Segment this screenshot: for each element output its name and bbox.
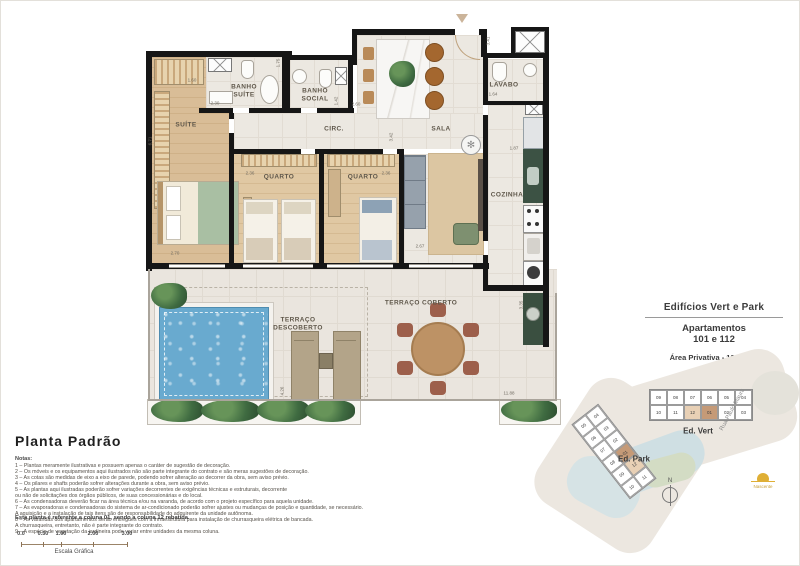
unit-number: 10 xyxy=(628,483,635,490)
dimension-label: 11.88 xyxy=(504,391,515,396)
unit-number: 07 xyxy=(599,447,606,454)
unit-number: 02 xyxy=(612,437,619,444)
dimension-label: 2.36 xyxy=(382,171,391,176)
wall xyxy=(543,291,549,347)
unit-number: 05 xyxy=(580,422,587,429)
bar-stool xyxy=(425,91,444,110)
dimension-label: 1.87 xyxy=(510,146,519,151)
unit-number: 11 xyxy=(641,474,648,481)
apartments-label: Apartamentos xyxy=(634,323,794,334)
unit-number: 09 xyxy=(618,471,625,478)
unit-number: 03 xyxy=(741,410,746,415)
burner xyxy=(535,209,539,213)
shaft-box xyxy=(515,31,545,53)
dimension-label: 1.42 xyxy=(334,97,339,106)
banho-suite-tub xyxy=(260,75,279,104)
lounge-chair xyxy=(333,331,361,401)
floor-plan-page: ✻ xyxy=(0,0,800,566)
unit-cell: 08 xyxy=(667,390,684,405)
note-item: 9 – A espécie de vegetação da jardineira… xyxy=(15,529,535,535)
room-label-quarto2: QUARTO xyxy=(348,173,378,181)
room-label-sala: SALA xyxy=(431,125,450,133)
quarto1-wardrobe xyxy=(241,154,317,167)
quarto2-bed xyxy=(359,197,397,263)
note-item: 5 – As plantas aqui ilustradas poderão s… xyxy=(15,487,535,499)
kitchen-counter-dark xyxy=(523,149,543,203)
wall xyxy=(317,108,354,113)
fridge xyxy=(523,117,545,149)
kitchen-counter-sink xyxy=(523,233,545,261)
unit-number: 08 xyxy=(673,395,678,400)
building-title: Edifícios Vert e Park xyxy=(634,302,794,313)
dining-table xyxy=(411,322,465,376)
dimension-label: 3.35 xyxy=(519,301,524,310)
wall xyxy=(146,51,152,271)
plant xyxy=(257,399,309,422)
entry-marker-icon xyxy=(456,14,468,23)
armchair xyxy=(453,223,479,245)
banho-suite-toilet xyxy=(241,60,254,79)
room-label-cozinha: COZINHA xyxy=(491,191,523,199)
unit-cell: 06 xyxy=(701,390,718,405)
room-label-suite: SUÍTE xyxy=(175,121,196,129)
unit-cell: 07 xyxy=(684,390,701,405)
quarto2-pillow xyxy=(362,200,392,213)
dimension-label: 2.60 xyxy=(352,102,361,107)
island-plant xyxy=(389,61,415,87)
unit-cell: 09 xyxy=(650,390,667,405)
unit-number: 01 xyxy=(707,410,712,415)
lavabo-sink xyxy=(523,63,537,77)
dimension-label: 2.67 xyxy=(416,244,425,249)
wall xyxy=(319,154,324,265)
suite-bed-headboard xyxy=(158,182,163,244)
lounge-line xyxy=(294,340,314,341)
ed-park-label: Ed. Park xyxy=(618,455,650,464)
sun-label: Nascente xyxy=(753,484,772,489)
dimension-label: 2.30 xyxy=(211,101,220,106)
dimension-label: 6.71 xyxy=(148,137,153,146)
unit-cell: 11 xyxy=(667,405,684,420)
room-label-terraco-descoberto: TERRAÇO DESCOBERTO xyxy=(273,317,323,332)
dimension-label: 1.75 xyxy=(276,59,281,68)
burner xyxy=(535,222,539,226)
compass-n-label: N xyxy=(668,478,672,484)
burner xyxy=(527,209,531,213)
plant xyxy=(151,283,187,309)
unit-number: 08 xyxy=(609,459,616,466)
quarto2-wardrobe xyxy=(327,154,395,167)
unit-number: 03 xyxy=(602,425,609,432)
glass-door xyxy=(409,264,473,268)
site-tree xyxy=(751,371,799,415)
plant xyxy=(151,399,203,422)
side-table xyxy=(319,353,333,369)
dimension-label: 1.64 xyxy=(489,92,498,97)
quarto1-bed xyxy=(243,199,278,263)
lounge-chair xyxy=(291,331,319,401)
dimension-label: 2.36 xyxy=(246,171,255,176)
wall xyxy=(399,154,404,265)
island-chair xyxy=(363,69,374,82)
lavabo-toilet xyxy=(492,62,507,82)
wall xyxy=(290,55,354,60)
suite-pillow xyxy=(166,186,181,211)
plant xyxy=(305,400,355,422)
wall xyxy=(483,255,488,287)
unit-number: 05 xyxy=(724,395,729,400)
banho-social-shower xyxy=(335,67,347,85)
pool xyxy=(159,307,269,401)
page-title: Planta Padrão xyxy=(15,433,121,449)
notes-heading: Notas: xyxy=(15,456,32,462)
compass-icon xyxy=(662,487,678,503)
unit-cell: 01 xyxy=(701,405,718,420)
notes-list: 1 – Plantas meramente ilustrativas e pos… xyxy=(15,463,535,535)
quarto1-throw xyxy=(246,238,273,260)
unit-number: 11 xyxy=(673,410,678,415)
unit-number: 09 xyxy=(656,395,661,400)
room-label-terraco-coberto: TERRAÇO COBERTO xyxy=(385,299,457,307)
island-chair xyxy=(363,91,374,104)
unit-cell: 03 xyxy=(735,405,752,420)
unit-number: 06 xyxy=(707,395,712,400)
banho-suite-shower xyxy=(208,58,232,72)
suite-pillow xyxy=(166,215,181,240)
unit-number: 07 xyxy=(690,395,695,400)
room-label-circ: CIRC. xyxy=(324,125,344,133)
unit-cell: 10 xyxy=(650,405,667,420)
suite-bed xyxy=(157,181,239,245)
washer-drum xyxy=(527,266,540,279)
burner xyxy=(527,222,531,226)
dining-chair xyxy=(397,361,413,375)
quarto2-throw xyxy=(362,240,392,260)
quarto1-throw xyxy=(284,238,311,260)
unit-number: 04 xyxy=(593,413,600,420)
dining-chair xyxy=(397,323,413,337)
dimension-label: 3.41 xyxy=(486,37,491,46)
glass-door xyxy=(327,264,393,268)
bar-stool xyxy=(425,43,444,62)
terrace-edge xyxy=(148,269,150,401)
unit-number: 12 xyxy=(690,410,695,415)
glass-door xyxy=(243,264,313,268)
stove xyxy=(523,205,545,233)
wall xyxy=(483,53,488,101)
dimension-label: 2.70 xyxy=(171,251,180,256)
apartments-numbers: 101 e 112 xyxy=(634,334,794,345)
quarto2-desk xyxy=(328,169,341,217)
pool-inner-line xyxy=(164,312,264,396)
wall xyxy=(543,53,549,293)
ed-vert-label: Ed. Vert xyxy=(683,427,713,436)
banho-social-sink xyxy=(292,69,307,84)
compass-needle xyxy=(670,485,671,506)
bbq-grill xyxy=(526,307,540,321)
dining-chair xyxy=(463,323,479,337)
wall xyxy=(282,53,290,108)
room-label-quarto1: QUARTO xyxy=(264,173,294,181)
wall xyxy=(199,108,233,113)
wall xyxy=(229,113,234,119)
room-label-lavabo: LAVABO xyxy=(490,81,519,89)
lounge-line xyxy=(336,340,356,341)
terrace-edge xyxy=(148,399,557,401)
wall xyxy=(483,101,543,105)
quarto1-pillow xyxy=(284,202,311,214)
divider xyxy=(645,317,783,318)
quarto1-bed xyxy=(281,199,316,263)
room-label-banho-suite: BANHO SUÍTE xyxy=(231,84,257,99)
column-note: Esta planta é referente a coluna 01, sen… xyxy=(15,515,190,521)
dining-chair xyxy=(463,361,479,375)
sun-baseline xyxy=(751,481,775,482)
wall xyxy=(352,29,455,35)
wall xyxy=(249,108,301,113)
bbq-counter xyxy=(523,293,543,345)
wall xyxy=(315,149,383,154)
bar-stool xyxy=(425,67,444,86)
sun-disc xyxy=(757,473,769,481)
dimension-label: 4.26 xyxy=(280,387,285,396)
wall xyxy=(483,115,488,241)
plant xyxy=(201,400,259,422)
ceiling-fan: ✻ xyxy=(461,135,481,155)
site-plan: 090807060504101112010203 Ed. Vert 050406… xyxy=(541,361,800,561)
sink-basin xyxy=(527,238,540,254)
quarto1-pillow xyxy=(246,202,273,214)
sofa xyxy=(404,155,426,229)
washer xyxy=(523,261,545,287)
glass-door xyxy=(169,264,225,268)
unit-cell: 12 xyxy=(684,405,701,420)
island-chair xyxy=(363,47,374,60)
dimension-label: 3.42 xyxy=(389,133,394,142)
wall xyxy=(234,149,301,154)
kitchen-sink xyxy=(527,167,539,185)
banho-social-toilet xyxy=(319,69,332,88)
room-label-banho-social: BANHO SOCIAL xyxy=(302,88,329,103)
sun-icon xyxy=(753,471,773,481)
unit-number: 06 xyxy=(590,435,597,442)
dimension-label: 1.60 xyxy=(188,78,197,83)
unit-number: 10 xyxy=(656,410,661,415)
dining-chair xyxy=(430,381,446,395)
wall xyxy=(483,285,549,291)
wall xyxy=(146,51,292,57)
